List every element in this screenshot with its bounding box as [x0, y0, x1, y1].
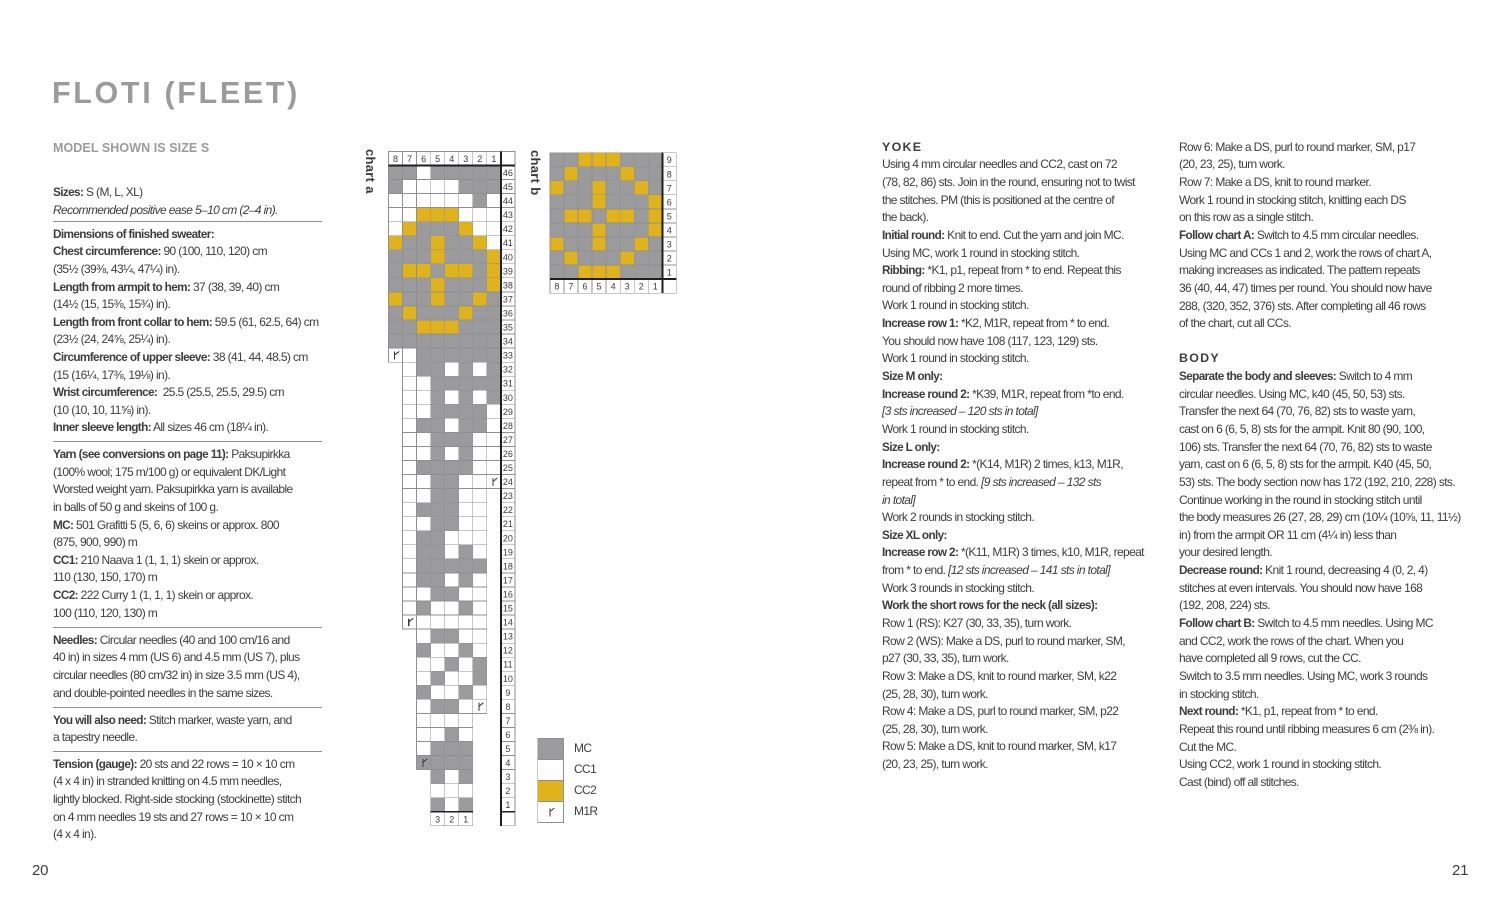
svg-text:38: 38 — [503, 280, 513, 290]
svg-text:41: 41 — [503, 238, 513, 248]
svg-text:29: 29 — [503, 407, 513, 417]
svg-text:4: 4 — [505, 758, 510, 768]
svg-text:24: 24 — [503, 477, 513, 487]
svg-text:9: 9 — [505, 688, 510, 698]
svg-text:11: 11 — [503, 660, 512, 670]
svg-text:6: 6 — [667, 197, 672, 207]
svg-text:43: 43 — [503, 210, 513, 220]
svg-text:7: 7 — [505, 716, 510, 726]
svg-text:7: 7 — [568, 282, 573, 292]
svg-text:12: 12 — [503, 646, 513, 656]
svg-text:42: 42 — [503, 224, 513, 234]
svg-text:46: 46 — [503, 168, 513, 178]
svg-text:13: 13 — [503, 632, 513, 642]
svg-text:5: 5 — [597, 282, 602, 292]
svg-text:45: 45 — [503, 182, 513, 192]
svg-text:27: 27 — [503, 435, 513, 445]
svg-text:32: 32 — [503, 365, 513, 375]
svg-text:30: 30 — [503, 393, 513, 403]
svg-text:8: 8 — [554, 282, 559, 292]
svg-text:25: 25 — [503, 463, 513, 473]
svg-text:1: 1 — [491, 154, 496, 164]
svg-text:6: 6 — [421, 154, 426, 164]
svg-text:1: 1 — [653, 282, 658, 292]
svg-text:7: 7 — [667, 183, 672, 193]
svg-text:3: 3 — [667, 240, 672, 250]
svg-text:5: 5 — [435, 154, 440, 164]
svg-text:44: 44 — [503, 196, 513, 206]
svg-text:28: 28 — [503, 421, 513, 431]
svg-text:7: 7 — [407, 154, 412, 164]
svg-text:1: 1 — [463, 814, 468, 824]
svg-text:2: 2 — [477, 154, 482, 164]
svg-text:8: 8 — [505, 702, 510, 712]
svg-text:23: 23 — [503, 491, 513, 501]
svg-text:40: 40 — [503, 252, 513, 262]
svg-text:31: 31 — [503, 379, 513, 389]
svg-text:16: 16 — [503, 589, 513, 599]
svg-text:9: 9 — [667, 155, 672, 165]
svg-text:35: 35 — [503, 323, 513, 333]
svg-text:8: 8 — [667, 169, 672, 179]
svg-text:15: 15 — [503, 604, 513, 614]
svg-text:2: 2 — [449, 814, 454, 824]
svg-text:4: 4 — [449, 154, 454, 164]
svg-text:8: 8 — [393, 154, 398, 164]
svg-text:20: 20 — [503, 533, 513, 543]
svg-text:17: 17 — [503, 575, 513, 585]
svg-text:2: 2 — [639, 282, 644, 292]
svg-text:34: 34 — [503, 337, 513, 347]
svg-text:19: 19 — [503, 547, 513, 557]
svg-text:2: 2 — [667, 254, 672, 264]
svg-text:3: 3 — [625, 282, 630, 292]
svg-text:4: 4 — [611, 282, 616, 292]
svg-text:21: 21 — [503, 519, 513, 529]
svg-text:1: 1 — [505, 800, 510, 810]
svg-text:39: 39 — [503, 266, 513, 276]
svg-text:6: 6 — [583, 282, 588, 292]
svg-text:33: 33 — [503, 351, 513, 361]
svg-text:5: 5 — [505, 744, 510, 754]
svg-text:10: 10 — [503, 674, 513, 684]
svg-text:3: 3 — [505, 772, 510, 782]
svg-text:3: 3 — [435, 814, 440, 824]
svg-text:18: 18 — [503, 561, 513, 571]
svg-text:2: 2 — [505, 786, 510, 796]
svg-text:4: 4 — [667, 225, 672, 235]
svg-text:5: 5 — [667, 211, 672, 221]
svg-text:1: 1 — [667, 268, 672, 278]
svg-text:6: 6 — [505, 730, 510, 740]
svg-text:22: 22 — [503, 505, 513, 515]
svg-text:37: 37 — [503, 294, 513, 304]
svg-text:3: 3 — [463, 154, 468, 164]
svg-text:14: 14 — [503, 618, 513, 628]
svg-text:36: 36 — [503, 308, 513, 318]
svg-text:26: 26 — [503, 449, 513, 459]
